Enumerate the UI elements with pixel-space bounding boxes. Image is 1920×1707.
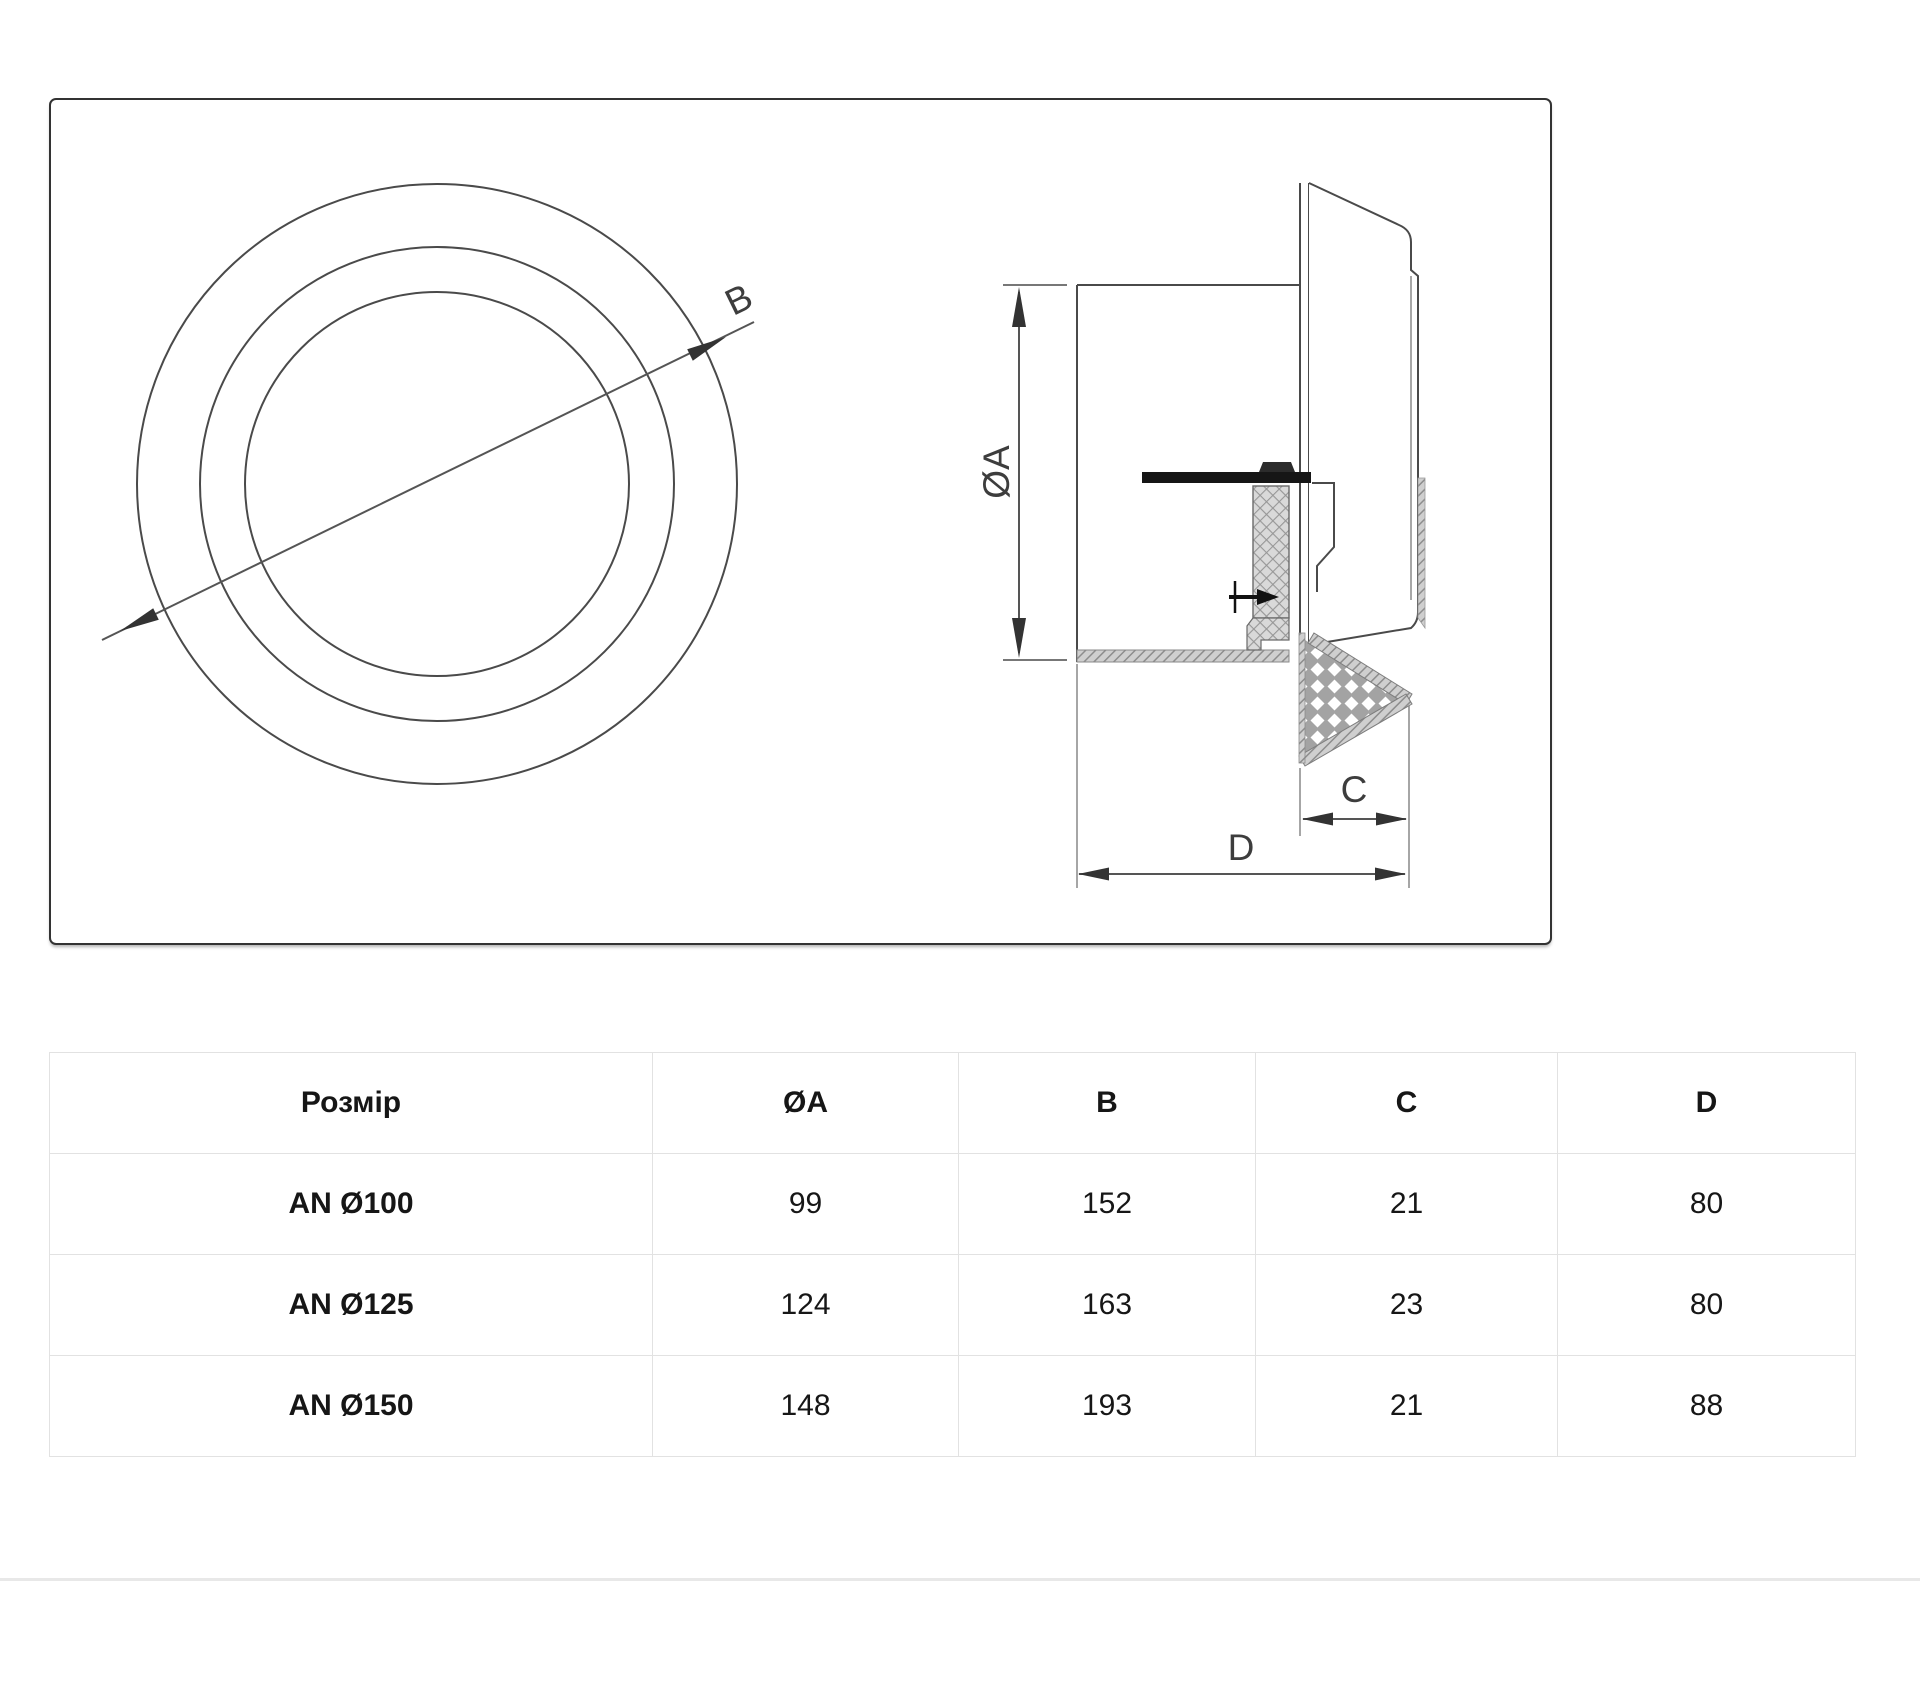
rivet-bump [1259, 462, 1295, 472]
spec-drawing-card: B ØA [49, 98, 1552, 945]
value-cell: 148 [653, 1356, 959, 1457]
dim-label-b: B [719, 276, 759, 324]
flange-cover-panel [1309, 183, 1418, 645]
value-cell: 21 [1256, 1154, 1558, 1255]
duct-bottom-wall [1077, 650, 1289, 662]
dim-label-c: C [1341, 769, 1368, 810]
value-cell: 99 [653, 1154, 959, 1255]
size-cell: AN Ø125 [50, 1255, 653, 1356]
inner-disc-circle [245, 292, 629, 676]
product-spec-section: B ØA [0, 0, 1920, 1707]
collar-foot [1247, 618, 1289, 650]
dim-label-oa: ØA [976, 445, 1017, 499]
value-cell: 124 [653, 1255, 959, 1356]
front-view [102, 184, 754, 784]
table-header-row: Розмір ØA B C D [50, 1053, 1856, 1154]
table-row: AN Ø100 99 152 21 80 [50, 1154, 1856, 1255]
section-divider [0, 1578, 1920, 1581]
table-row: AN Ø125 124 163 23 80 [50, 1255, 1856, 1356]
value-cell: 88 [1558, 1356, 1856, 1457]
technical-drawing-svg: B ØA [51, 100, 1550, 943]
middle-rim-circle [200, 247, 674, 721]
col-header-oa: ØA [653, 1053, 959, 1154]
col-header-b: B [959, 1053, 1256, 1154]
value-cell: 23 [1256, 1255, 1558, 1356]
mounting-plate [1142, 472, 1311, 483]
cone-left-edge [1299, 633, 1305, 763]
col-header-d: D [1558, 1053, 1856, 1154]
col-header-size: Розмір [50, 1053, 653, 1154]
dimensions-table: Розмір ØA B C D AN Ø100 99 152 21 80 AN … [49, 1052, 1856, 1457]
col-header-c: C [1256, 1053, 1558, 1154]
value-cell: 80 [1558, 1255, 1856, 1356]
value-cell: 193 [959, 1356, 1256, 1457]
gasket-band [1418, 478, 1425, 628]
value-cell: 21 [1256, 1356, 1558, 1457]
dim-label-d: D [1228, 827, 1255, 868]
size-cell: AN Ø100 [50, 1154, 653, 1255]
value-cell: 163 [959, 1255, 1256, 1356]
cone-grille [1305, 640, 1405, 756]
side-view: ØA [976, 183, 1425, 888]
outer-rim-circle [137, 184, 737, 784]
size-cell: AN Ø150 [50, 1356, 653, 1457]
value-cell: 80 [1558, 1154, 1856, 1255]
table-row: AN Ø150 148 193 21 88 [50, 1356, 1856, 1457]
value-cell: 152 [959, 1154, 1256, 1255]
